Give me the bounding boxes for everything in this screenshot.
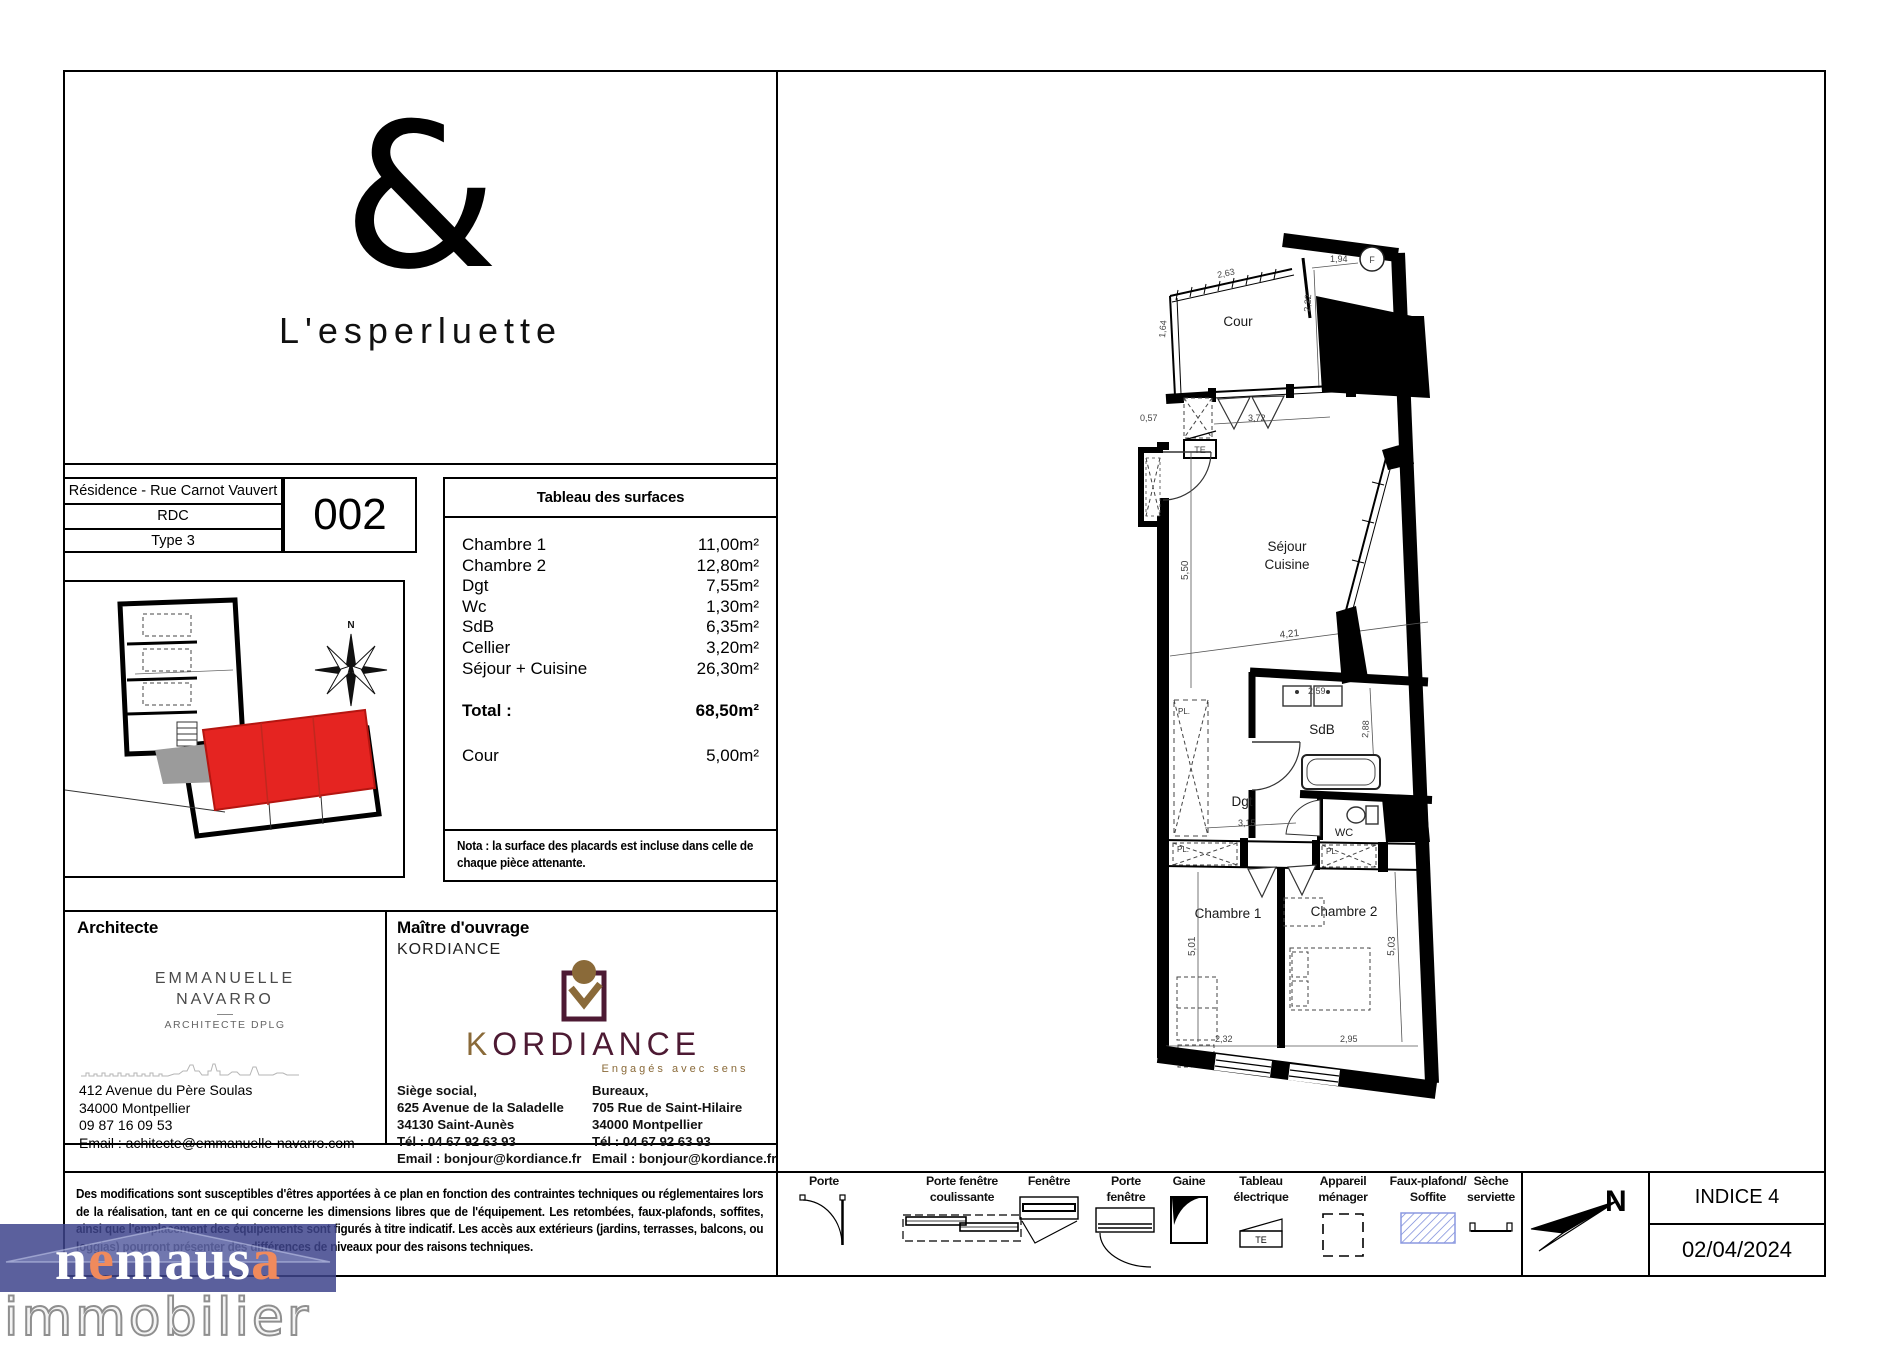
surface-row: Séjour + Cuisine 26,30m² <box>462 659 759 680</box>
surface-row: Dgt 7,55m² <box>462 576 759 597</box>
surface-row-label: Dgt <box>462 576 488 597</box>
plan-te-marker: TE <box>1194 445 1206 455</box>
window-symbol-icon <box>1019 1195 1079 1247</box>
architect-email: Email : achitecte@emmanuelle-navarro.com <box>79 1135 355 1153</box>
plan-pl-marker: PL. <box>1326 847 1338 856</box>
surface-row-value: 11,00m² <box>698 535 759 556</box>
north-label: N <box>1605 1185 1627 1219</box>
revision-date: 02/04/2024 <box>1648 1223 1826 1277</box>
plan-dim: 1,94 <box>1330 254 1348 264</box>
plan-room-dgt: Dgt <box>1231 794 1252 809</box>
legend-label: Appareil <box>1310 1173 1376 1189</box>
legend-item-porte-fenetre: Porte fenêtre <box>1095 1173 1157 1273</box>
surface-total-value: 68,50m² <box>696 701 759 722</box>
owner-name: KORDIANCE <box>397 941 501 959</box>
legend-label: Fenêtre <box>1018 1173 1080 1189</box>
legend-label: Sèche <box>1462 1173 1520 1189</box>
plan-room-chambre1: Chambre 1 <box>1195 906 1262 921</box>
plan-dim: 1,64 <box>1157 320 1168 338</box>
surface-row-value: 7,55m² <box>706 576 759 597</box>
legend-label: Gaine <box>1163 1173 1215 1189</box>
legend-item-porte: Porte <box>793 1173 855 1273</box>
stakeholders-box: Architecte EMMANUELLE NAVARRO ARCHITECTE… <box>63 910 778 1145</box>
surface-row-value: 3,20m² <box>706 638 759 659</box>
legend-label: Porte <box>793 1173 855 1189</box>
surface-row: Wc 1,30m² <box>462 597 759 618</box>
watermark-immobilier: immobilier <box>4 1288 311 1348</box>
sliding-door-symbol-icon <box>902 1211 1022 1245</box>
surface-row-label: Chambre 1 <box>462 535 546 556</box>
plan-dim: 3,15 <box>1238 818 1256 828</box>
surface-total-label: Total : <box>462 701 512 722</box>
watermark-name-part: maus <box>115 1227 251 1292</box>
owner-bureaux-line: Email : bonjour@kordiance.fr <box>592 1150 776 1167</box>
date-cell: 02/04/2024 <box>1648 1223 1826 1277</box>
surface-row-value: 26,30m² <box>697 659 759 680</box>
electrical-panel-symbol-icon: TE <box>1236 1213 1286 1255</box>
logo-box: & L'esperluette <box>63 70 778 465</box>
title-type: Type 3 <box>65 530 281 553</box>
legend-item-appareil-menager: Appareil ménager <box>1310 1173 1376 1273</box>
surface-row-label: Chambre 2 <box>462 556 546 577</box>
site-plan-drawing: N <box>65 582 403 876</box>
site-plan-north-label: N <box>347 620 354 631</box>
duct-symbol-icon <box>1169 1195 1209 1247</box>
surface-table-title: Tableau des surfaces <box>445 479 776 518</box>
surface-total-row: Total : 68,50m² <box>462 701 759 722</box>
surface-row-label: SdB <box>462 617 494 638</box>
surface-row: SdB 6,35m² <box>462 617 759 638</box>
french-door-symbol-icon <box>1095 1207 1157 1269</box>
owner-siege-line: 625 Avenue de la Saladelle <box>397 1099 581 1116</box>
unit-number-box: 002 <box>283 477 417 553</box>
kordiance-wordmark-k: K <box>466 1026 492 1062</box>
watermark-name: nemausa <box>0 1226 336 1293</box>
plan-room-sejour-line2: Cuisine <box>1264 557 1309 572</box>
kordiance-wordmark: KORDIANCE <box>387 1026 780 1063</box>
kordiance-wordmark-rest: ORDIANCE <box>492 1026 701 1062</box>
indice-label: INDICE 4 <box>1648 1171 1826 1223</box>
plan-dim: 5,50 <box>1180 560 1191 580</box>
floor-plan-drawing: F 1,94 2,22 1,64 2,63 Cour 3,72 0,57 TE … <box>778 72 1824 1169</box>
residence-brand-name: L'esperluette <box>65 310 776 352</box>
plan-dim: 4,21 <box>1279 628 1300 641</box>
indice-cell: INDICE 4 <box>1648 1171 1826 1223</box>
unit-number: 002 <box>285 479 415 551</box>
plan-room-sdb: SdB <box>1309 722 1335 737</box>
owner-bureaux-line: 34000 Montpellier <box>592 1116 776 1133</box>
appliance-symbol-icon <box>1320 1211 1366 1259</box>
architect-name-line1: EMMANUELLE <box>65 970 385 988</box>
kordiance-logo-icon <box>547 960 621 1024</box>
surface-nota-text: Nota : la surface des placards est inclu… <box>457 837 764 871</box>
surface-nota: Nota : la surface des placards est inclu… <box>445 829 776 880</box>
surface-row: Chambre 2 12,80m² <box>462 556 759 577</box>
legend-item-gaine: Gaine <box>1163 1173 1215 1273</box>
plan-dim: 3,72 <box>1248 413 1266 423</box>
owner-heading: Maître d'ouvrage <box>397 918 529 938</box>
legend-item-tableau-electrique: Tableau électrique TE <box>1222 1173 1300 1273</box>
plan-room-cour: Cour <box>1223 314 1253 329</box>
architect-address-line2: 34000 Montpellier <box>79 1100 355 1118</box>
watermark-name-part: n <box>55 1227 88 1292</box>
owner-siege-line: Siège social, <box>397 1082 581 1099</box>
plan-dim: 2,59 <box>1308 686 1326 696</box>
surface-cour-label: Cour <box>462 746 499 767</box>
owner-siege-line: Tél : 04 67 92 63 93 <box>397 1133 581 1150</box>
plan-dim: 2,63 <box>1216 267 1235 280</box>
surface-row-value: 1,30m² <box>706 597 759 618</box>
plan-dim: 5,01 <box>1187 936 1198 956</box>
te-symbol-label: TE <box>1255 1235 1267 1245</box>
plan-dim: 2,88 <box>1360 720 1371 738</box>
door-symbol-icon <box>796 1193 852 1251</box>
surface-row-label: Wc <box>462 597 487 618</box>
legend-label: électrique <box>1222 1189 1300 1205</box>
architect-address-line1: 412 Avenue du Père Soulas <box>79 1082 355 1100</box>
owner-bureaux-line: Bureaux, <box>592 1082 776 1099</box>
plan-dim: 2,32 <box>1215 1034 1233 1044</box>
plan-pl-marker: PL. <box>1178 707 1190 716</box>
soffit-symbol-icon <box>1399 1211 1457 1245</box>
legend-item-fenetre: Fenêtre <box>1018 1173 1080 1273</box>
legend-item-faux-plafond: Faux-plafond/ Soffite <box>1384 1173 1472 1273</box>
surface-row-value: 12,80m² <box>697 556 759 577</box>
legend-item-seche-serviette: Sèche serviette <box>1462 1173 1520 1273</box>
kordiance-tagline: Engagés avec sens <box>419 1063 749 1075</box>
towel-dryer-symbol-icon <box>1467 1215 1515 1241</box>
legend-label: Tableau <box>1222 1173 1300 1189</box>
plan-room-chambre2: Chambre 2 <box>1311 904 1378 919</box>
legend-label: ménager <box>1310 1189 1376 1205</box>
legend-label: Porte <box>1095 1173 1157 1189</box>
plan-dim: 5,03 <box>1386 936 1398 956</box>
owner-siege-line: Email : bonjour@kordiance.fr <box>397 1150 581 1167</box>
strip-divider <box>776 1171 778 1277</box>
plan-room-sejour-line1: Séjour <box>1267 539 1307 554</box>
north-arrow-cell: N <box>1521 1171 1648 1277</box>
architect-name-divider <box>217 1014 233 1015</box>
legend-label: Soffite <box>1384 1189 1472 1205</box>
surface-table: Tableau des surfaces Chambre 1 11,00m² C… <box>443 477 778 882</box>
legend-label: Faux-plafond/ <box>1384 1173 1472 1189</box>
plan-dim: 0,57 <box>1140 413 1158 423</box>
surface-row: Chambre 1 11,00m² <box>462 535 759 556</box>
title-residence: Résidence - Rue Carnot Vauvert <box>65 479 281 505</box>
surface-row-value: 6,35m² <box>706 617 759 638</box>
watermark-name-part: a <box>251 1227 281 1292</box>
surface-row-label: Séjour + Cuisine <box>462 659 587 680</box>
ampersand-logo-icon: & <box>65 90 776 305</box>
skyline-graphic <box>79 1060 369 1080</box>
architect-name-line2: NAVARRO <box>65 991 385 1009</box>
plan-dim: 2,22 <box>1302 294 1313 312</box>
legend-label: fenêtre <box>1095 1189 1157 1205</box>
legend-label: serviette <box>1462 1189 1520 1205</box>
surface-cour-value: 5,00m² <box>706 746 759 767</box>
site-plan-compass-icon <box>315 634 387 706</box>
surface-row: Cellier 3,20m² <box>462 638 759 659</box>
architect-heading: Architecte <box>77 918 158 938</box>
owner-bureaux-line: Tél : 04 67 92 63 93 <box>592 1133 776 1150</box>
architect-phone: 09 87 16 09 53 <box>79 1117 355 1135</box>
plan-f-marker: F <box>1369 255 1375 265</box>
title-block: Résidence - Rue Carnot Vauvert RDC Type … <box>63 477 283 553</box>
title-floor: RDC <box>65 505 281 530</box>
owner-siege-line: 34130 Saint-Aunès <box>397 1116 581 1133</box>
site-plan-box: N <box>63 580 405 878</box>
plan-pl-marker: PL. <box>1177 845 1189 854</box>
architect-title: ARCHITECTE DPLG <box>65 1019 385 1031</box>
watermark-name-part: e <box>88 1227 115 1292</box>
surface-cour-row: Cour 5,00m² <box>462 746 759 767</box>
plan-room-wc: WC <box>1335 827 1353 839</box>
surface-row-label: Cellier <box>462 638 510 659</box>
owner-bureaux-line: 705 Rue de Saint-Hilaire <box>592 1099 776 1116</box>
plan-dim: 2,95 <box>1340 1034 1358 1044</box>
